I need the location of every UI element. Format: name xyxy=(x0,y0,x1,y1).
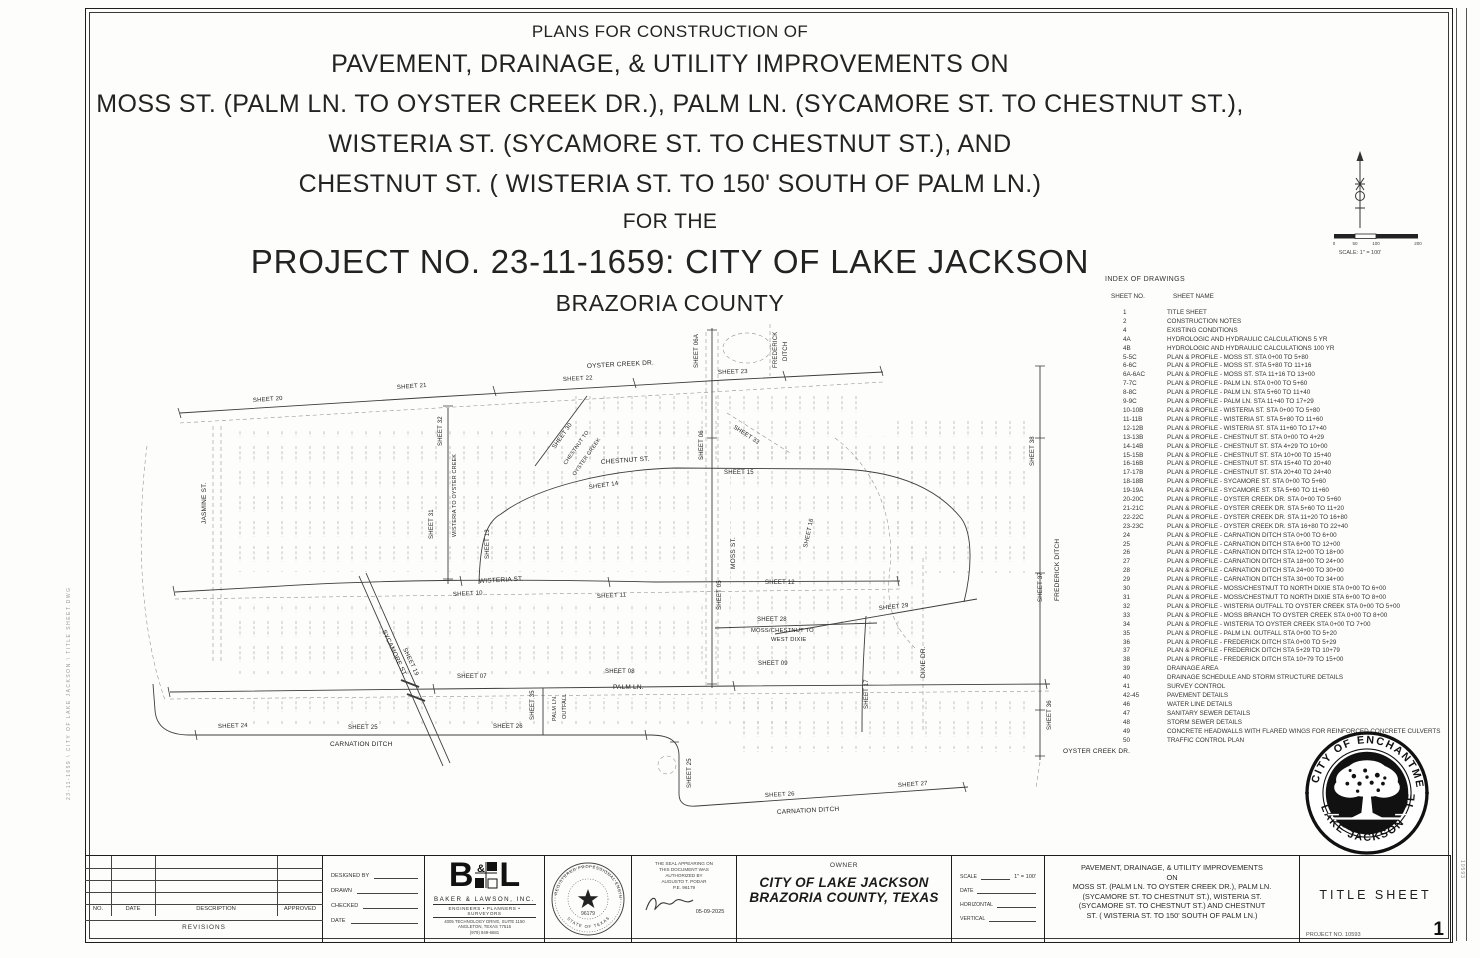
index-row: 35PLAN & PROFILE - PALM LN. OUTFALL STA … xyxy=(1105,630,1450,639)
firm-phone: (979) 849-6681 xyxy=(425,930,544,935)
rev-col-date: DATE xyxy=(111,906,155,912)
city-seal-icon: CITY OF ENCHANTMENT LAKE JACKSON · TEXAS xyxy=(1292,718,1442,868)
map-label: SHEET 24 xyxy=(218,723,248,730)
index-row: 39DRAINAGE AREA xyxy=(1105,665,1450,674)
map-label: WISTERIA ST. xyxy=(479,576,524,585)
index-row: 34PLAN & PROFILE - WISTERIA TO OYSTER CR… xyxy=(1105,621,1450,630)
index-row: 8-8CPLAN & PROFILE - PALM LN. STA 5+60 T… xyxy=(1105,389,1450,398)
index-row: 4AHYDROLOGIC AND HYDRAULIC CALCULATIONS … xyxy=(1105,336,1450,345)
map-label: DITCH xyxy=(783,342,789,361)
designed-row: DRAWN xyxy=(331,879,418,894)
county-title: BRAZORIA COUNTY xyxy=(95,290,1245,317)
designed-by-block: DESIGNED BYDRAWNCHECKEDDATE xyxy=(323,856,425,942)
svg-text:STATE OF TEXAS: STATE OF TEXAS xyxy=(566,915,611,929)
project-title-line: ST. ( WISTERIA ST. TO 150' SOUTH OF PALM… xyxy=(1045,911,1299,921)
map-label: SHEET 09 xyxy=(758,661,788,667)
project-scope-line-3: WISTERIA ST. (SYCAMORE ST. TO CHESTNUT S… xyxy=(95,130,1245,159)
index-row: 13-13BPLAN & PROFILE - CHESTNUT ST. STA … xyxy=(1105,434,1450,443)
index-row: 6-6CPLAN & PROFILE - MOSS ST. STA 5+80 T… xyxy=(1105,362,1450,371)
map-label: SHEET 21 xyxy=(397,383,428,391)
sheet-number: 1 xyxy=(1433,919,1444,941)
owner-label: OWNER xyxy=(737,862,951,869)
map-label: SHEET 32 xyxy=(438,416,444,446)
index-row: 15-15BPLAN & PROFILE - CHESTNUT ST. STA … xyxy=(1105,452,1450,461)
project-scope-line-4: CHESTNUT ST. ( WISTERIA ST. TO 150' SOUT… xyxy=(95,170,1245,199)
map-lot-texture xyxy=(230,394,1025,752)
map-label: SHEET 25 xyxy=(687,758,693,788)
map-label: SHEET 12 xyxy=(765,580,795,586)
map-label: SHEET 17 xyxy=(864,679,870,709)
index-row: 33PLAN & PROFILE - MOSS BRANCH TO OYSTER… xyxy=(1105,612,1450,621)
map-label: SHEET 15 xyxy=(724,470,754,476)
map-label: SHEET 23 xyxy=(718,369,748,376)
index-row: 11-11BPLAN & PROFILE - WISTERIA ST. STA … xyxy=(1105,416,1450,425)
map-label: SHEET 36 xyxy=(1047,700,1053,730)
authorization-line: P.E. 96179 xyxy=(632,885,736,891)
map-label: SHEET 10 xyxy=(453,590,484,598)
index-row: 18-18BPLAN & PROFILE - SYCAMORE ST. STA … xyxy=(1105,478,1450,487)
index-row: 10-10BPLAN & PROFILE - WISTERIA ST. STA … xyxy=(1105,407,1450,416)
location-map: SHEET 20SHEET 21SHEET 22OYSTER CREEK DR.… xyxy=(135,318,1145,848)
revision-table-header: NO. DATE DESCRIPTION APPROVED xyxy=(85,906,323,912)
scale-caption: SCALE: 1" = 100' xyxy=(1318,250,1402,256)
index-row: 36PLAN & PROFILE - FREDERICK DITCH STA 0… xyxy=(1105,639,1450,648)
index-row: 42-45PAVEMENT DETAILS xyxy=(1105,692,1450,701)
map-label: SHEET 31 xyxy=(429,509,435,539)
index-col-sheet-no: SHEET NO. xyxy=(1105,293,1173,300)
index-row: 40DRAINAGE SCHEDULE AND STORM STRUCTURE … xyxy=(1105,674,1450,683)
sheet-project-no: PROJECT NO. 10593 xyxy=(1306,932,1361,938)
index-row: 17-17BPLAN & PROFILE - CHESTNUT ST. STA … xyxy=(1105,469,1450,478)
scale-tick-label: 200 xyxy=(1414,241,1422,246)
index-title: INDEX OF DRAWINGS xyxy=(1105,276,1450,283)
project-title-line: PAVEMENT, DRAINAGE, & UTILITY IMPROVEMEN… xyxy=(1045,863,1299,873)
scale-field-row: HORIZONTAL xyxy=(960,894,1036,908)
index-row: 5-5CPLAN & PROFILE - MOSS ST. STA 0+00 T… xyxy=(1105,354,1450,363)
map-label: SHEET 22 xyxy=(563,375,594,383)
map-label: CARNATION DITCH xyxy=(777,806,840,816)
pe-seal-block: REGISTERED PROFESSIONAL ENGINEER STATE O… xyxy=(545,856,632,942)
scale-bar: 050100200 xyxy=(1333,234,1423,246)
index-row: 2CONSTRUCTION NOTES xyxy=(1105,318,1450,327)
north-arrow-icon xyxy=(1355,151,1365,228)
project-scope-line-2: MOSS ST. (PALM LN. TO OYSTER CREEK DR.),… xyxy=(95,90,1245,119)
firm-block: B & L BAKER & LAWSON, INC. ENGINEERS • P… xyxy=(425,856,545,942)
firm-tagline: ENGINEERS • PLANNERS • SURVEYORS xyxy=(433,904,536,918)
index-row: 38PLAN & PROFILE - FREDERICK DITCH STA 1… xyxy=(1105,656,1450,665)
index-row: 14-14BPLAN & PROFILE - CHESTNUT ST. STA … xyxy=(1105,443,1450,452)
scale-tick-label: 50 xyxy=(1352,241,1358,246)
index-row: 4BHYDROLOGIC AND HYDRAULIC CALCULATIONS … xyxy=(1105,345,1450,354)
index-rows: 1TITLE SHEET2CONSTRUCTION NOTES4EXISTING… xyxy=(1105,309,1450,745)
project-title-block: PAVEMENT, DRAINAGE, & UTILITY IMPROVEMEN… xyxy=(1045,856,1300,942)
index-row: 23-23CPLAN & PROFILE - OYSTER CREEK DR. … xyxy=(1105,523,1450,532)
index-row: 25PLAN & PROFILE - CARNATION DITCH STA 6… xyxy=(1105,541,1450,550)
index-row: 28PLAN & PROFILE - CARNATION DITCH STA 2… xyxy=(1105,567,1450,576)
firm-logo: B & L xyxy=(425,860,544,894)
map-label: SHEET 06A xyxy=(694,334,700,368)
map-label: OUTFALL xyxy=(562,694,568,719)
index-row: 24PLAN & PROFILE - CARNATION DITCH STA 0… xyxy=(1105,532,1450,541)
project-title-line: MOSS ST. (PALM LN. TO OYSTER CREEK DR.),… xyxy=(1045,882,1299,892)
index-row: 6A-6ACPLAN & PROFILE - MOSS ST. STA 11+1… xyxy=(1105,371,1450,380)
scale-tick-label: 100 xyxy=(1372,241,1380,246)
map-label: OYSTER CREEK DR. xyxy=(1063,748,1130,755)
edge-note: 10593 xyxy=(1459,860,1465,879)
owner-name-2: BRAZORIA COUNTY, TEXAS xyxy=(737,890,951,905)
index-of-drawings: INDEX OF DRAWINGS SHEET NO. SHEET NAME 1… xyxy=(1105,276,1450,745)
authorization-block: THE SEAL APPEARING ONTHIS DOCUMENT WASAU… xyxy=(632,856,737,942)
index-row: 26PLAN & PROFILE - CARNATION DITCH STA 1… xyxy=(1105,549,1450,558)
designed-row: DESIGNED BY xyxy=(331,864,418,879)
map-label: SHEET 35 xyxy=(530,690,536,720)
map-label: SHEET 08 xyxy=(605,669,635,675)
index-col-sheet-name: SHEET NAME xyxy=(1173,293,1214,300)
map-label: SHEET 06 xyxy=(699,430,705,460)
map-label: SHEET 26 xyxy=(493,724,523,730)
map-label: SHEET 28 xyxy=(757,617,787,623)
map-label: SHEET 26 xyxy=(765,791,796,799)
index-row: 46WATER LINE DETAILS xyxy=(1105,701,1450,710)
svg-text:REGISTERED PROFESSIONAL ENGINE: REGISTERED PROFESSIONAL ENGINEER xyxy=(545,856,623,899)
index-row: 4EXISTING CONDITIONS xyxy=(1105,327,1450,336)
map-label: OYSTER CREEK DR. xyxy=(587,359,654,370)
map-label: FREDERICK DITCH xyxy=(1054,539,1061,601)
map-label: PALM LN. xyxy=(552,695,558,721)
map-label: SHEET 38 xyxy=(1030,436,1036,466)
map-label: SHEET 07 xyxy=(457,674,487,680)
for-the-line: FOR THE xyxy=(95,210,1245,234)
signature-icon xyxy=(644,893,696,915)
sheet-edge-strip xyxy=(1456,8,1467,941)
scale-tick-label: 0 xyxy=(1333,241,1336,246)
svg-text:96179: 96179 xyxy=(581,911,595,917)
revisions-caption: REVISIONS xyxy=(85,924,323,931)
map-label: MOSS ST. xyxy=(730,537,737,569)
index-row: 21-21CPLAN & PROFILE - OYSTER CREEK DR. … xyxy=(1105,505,1450,514)
index-header: SHEET NO. SHEET NAME xyxy=(1105,293,1450,300)
index-row: 41SURVEY CONTROL xyxy=(1105,683,1450,692)
firm-logo-grid-icon: & xyxy=(473,860,499,890)
project-title-line: ON xyxy=(1045,873,1299,883)
project-number-title: PROJECT NO. 23-11-1659: CITY OF LAKE JAC… xyxy=(95,243,1245,281)
project-scope-line-1: PAVEMENT, DRAINAGE, & UTILITY IMPROVEMEN… xyxy=(95,50,1245,79)
index-row: 31PLAN & PROFILE - MOSS/CHESTNUT TO NORT… xyxy=(1105,594,1450,603)
plot-stamp: 23-11-1659 \ CITY OF LAKE JACKSON \ TITL… xyxy=(66,240,72,800)
map-label: CARNATION DITCH xyxy=(330,741,393,748)
plans-for-line: PLANS FOR CONSTRUCTION OF xyxy=(95,22,1245,42)
seal-star-icon xyxy=(578,889,598,908)
north-scale-group: 050100200 xyxy=(1332,148,1452,248)
index-row: 12-12BPLAN & PROFILE - WISTERIA ST. STA … xyxy=(1105,425,1450,434)
map-label: WEST DIXIE xyxy=(771,637,806,643)
index-row: 22-22CPLAN & PROFILE - OYSTER CREEK DR. … xyxy=(1105,514,1450,523)
map-label: PALM LN. xyxy=(613,684,644,691)
index-row: 30PLAN & PROFILE - MOSS/CHESTNUT TO NORT… xyxy=(1105,585,1450,594)
scale-field-row: VERTICAL xyxy=(960,908,1036,922)
project-title-line: (SYCAMORE ST. TO CHESTNUT ST.), WISTERIA… xyxy=(1045,892,1299,902)
owner-name-1: CITY OF LAKE JACKSON xyxy=(737,875,951,890)
svg-text:&: & xyxy=(477,863,485,875)
map-label: SHEET 37 xyxy=(1038,572,1044,602)
sheet-name-block: TITLE SHEET PROJECT NO. 10593 1 xyxy=(1300,856,1451,942)
index-row: 32PLAN & PROFILE - WISTERIA OUTFALL TO O… xyxy=(1105,603,1450,612)
map-label: SHEET 05 xyxy=(717,580,723,610)
firm-name: BAKER & LAWSON, INC. xyxy=(425,896,544,903)
scale-fields-block: SCALE1" = 100'DATEHORIZONTALVERTICAL xyxy=(952,856,1045,942)
index-row: 29PLAN & PROFILE - CARNATION DITCH STA 3… xyxy=(1105,576,1450,585)
index-row: 37PLAN & PROFILE - FREDERICK DITCH STA 5… xyxy=(1105,647,1450,656)
map-label: MOSS/CHESTNUT TO xyxy=(751,628,814,634)
map-label: FREDERICK xyxy=(773,332,779,368)
map-label: SHEET 13 xyxy=(485,529,491,559)
designed-row: DATE xyxy=(331,909,418,924)
map-label: WISTERIA TO OYSTER CREEK xyxy=(452,454,458,537)
map-label: SHEET 27 xyxy=(898,781,929,789)
index-row: 7-7CPLAN & PROFILE - PALM LN. STA 0+00 T… xyxy=(1105,380,1450,389)
index-row: 1TITLE SHEET xyxy=(1105,309,1450,318)
map-label: SHEET 20 xyxy=(253,396,284,404)
map-label: DIXIE DR. xyxy=(920,646,927,678)
index-row: 16-16BPLAN & PROFILE - CHESTNUT ST. STA … xyxy=(1105,460,1450,469)
scale-field-row: SCALE1" = 100' xyxy=(960,866,1036,880)
rev-col-description: DESCRIPTION xyxy=(155,906,277,912)
header: PLANS FOR CONSTRUCTION OF PAVEMENT, DRAI… xyxy=(95,22,1245,317)
index-row: 27PLAN & PROFILE - CARNATION DITCH STA 1… xyxy=(1105,558,1450,567)
index-row: 9-9CPLAN & PROFILE - PALM LN. STA 11+40 … xyxy=(1105,398,1450,407)
scale-field-row: DATE xyxy=(960,880,1036,894)
owner-block: OWNER CITY OF LAKE JACKSON BRAZORIA COUN… xyxy=(737,856,952,942)
rev-col-approved: APPROVED xyxy=(277,906,323,912)
map-label: SHEET 25 xyxy=(348,725,378,731)
map-label: SHEET 11 xyxy=(597,592,627,600)
index-row: 19-19APLAN & PROFILE - SYCAMORE ST. STA … xyxy=(1105,487,1450,496)
sheet-title: TITLE SHEET xyxy=(1300,888,1451,902)
project-title-line: (SYCAMORE ST. TO CHESTNUT ST.) AND CHEST… xyxy=(1045,901,1299,911)
title-sheet-page: { "header": { "l1": "PLANS FOR CONSTRUCT… xyxy=(0,0,1480,958)
index-row: 20-20CPLAN & PROFILE - OYSTER CREEK DR. … xyxy=(1105,496,1450,505)
title-block: NO. DATE DESCRIPTION APPROVED REVISIONS … xyxy=(85,855,1451,942)
designed-row: CHECKED xyxy=(331,894,418,909)
map-label: JASMINE ST. xyxy=(201,482,208,524)
pe-seal-icon: REGISTERED PROFESSIONAL ENGINEER STATE O… xyxy=(545,856,631,942)
authorization-date: 05-09-2025 xyxy=(696,909,725,915)
revision-table: NO. DATE DESCRIPTION APPROVED REVISIONS xyxy=(85,856,323,942)
rev-col-no: NO. xyxy=(85,906,111,912)
